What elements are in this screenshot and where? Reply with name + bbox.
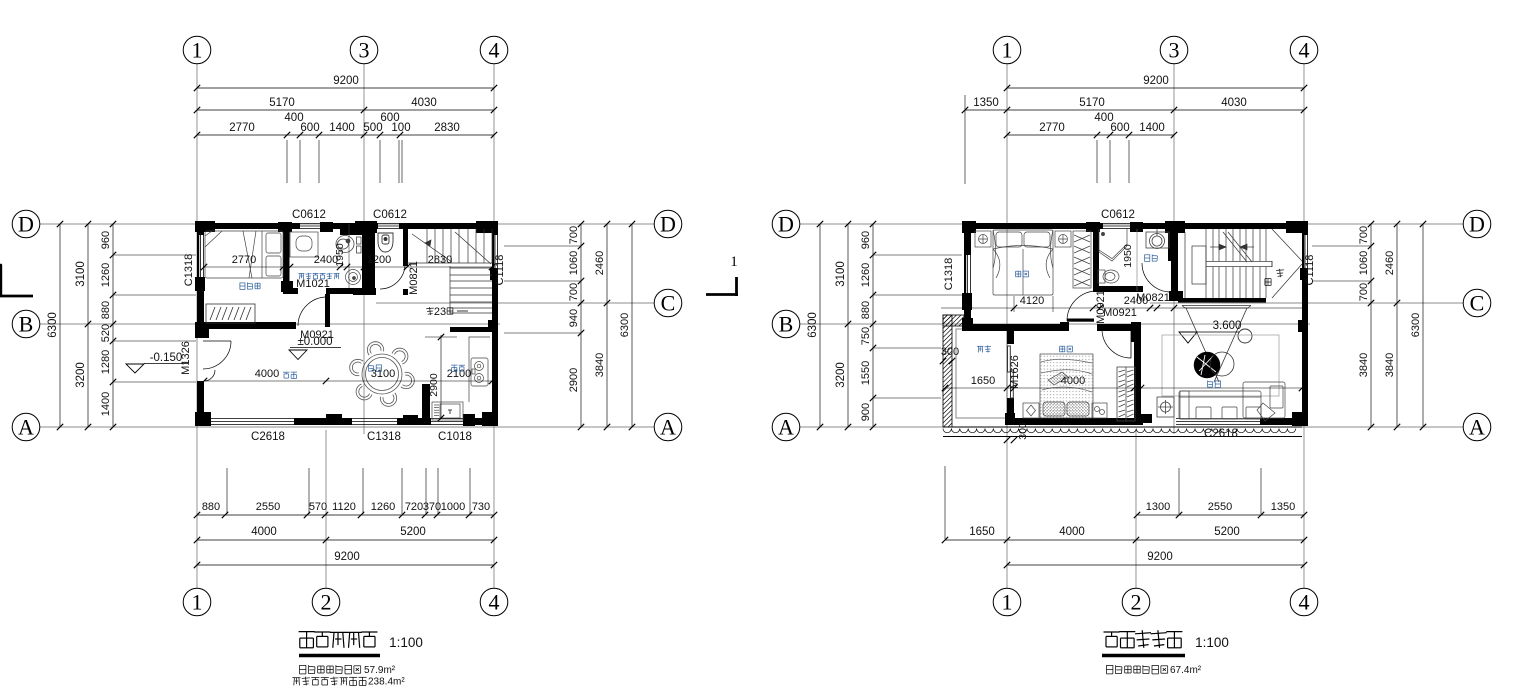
svg-text:9200: 9200 bbox=[334, 551, 360, 563]
svg-text:1350: 1350 bbox=[1271, 501, 1295, 513]
svg-text:2: 2 bbox=[321, 590, 332, 615]
svg-text:C1318: C1318 bbox=[183, 254, 195, 286]
svg-text:M1326: M1326 bbox=[180, 341, 192, 375]
svg-text:C0612: C0612 bbox=[373, 209, 407, 221]
svg-text:4000: 4000 bbox=[1061, 375, 1085, 387]
svg-text:3840: 3840 bbox=[1358, 353, 1370, 377]
svg-text:1950: 1950 bbox=[1122, 244, 1134, 268]
svg-text:2770: 2770 bbox=[229, 122, 255, 134]
svg-text:C: C bbox=[1470, 291, 1485, 316]
svg-text:A: A bbox=[660, 415, 676, 440]
svg-text:2: 2 bbox=[1131, 590, 1142, 615]
svg-text:1060: 1060 bbox=[568, 251, 580, 275]
svg-text:880: 880 bbox=[202, 501, 220, 513]
svg-text:2100: 2100 bbox=[447, 368, 471, 380]
svg-text:940: 940 bbox=[568, 309, 580, 327]
svg-text:4120: 4120 bbox=[1020, 295, 1044, 307]
svg-text:720: 720 bbox=[405, 501, 423, 513]
svg-text:1120: 1120 bbox=[332, 501, 356, 513]
svg-text:5200: 5200 bbox=[400, 526, 426, 538]
svg-text:880: 880 bbox=[860, 301, 872, 319]
svg-text:4: 4 bbox=[1299, 38, 1310, 63]
svg-text:A: A bbox=[1469, 415, 1485, 440]
svg-text:57.9m²: 57.9m² bbox=[364, 665, 396, 676]
svg-text:2900: 2900 bbox=[568, 368, 580, 392]
svg-text:3.600: 3.600 bbox=[1213, 320, 1242, 332]
svg-text:1260: 1260 bbox=[860, 263, 872, 287]
svg-text:C1118: C1118 bbox=[494, 255, 506, 286]
svg-text:C1018: C1018 bbox=[438, 431, 472, 443]
svg-text:750: 750 bbox=[860, 327, 872, 345]
svg-text:4000: 4000 bbox=[1059, 526, 1085, 538]
svg-text:1650: 1650 bbox=[969, 526, 995, 538]
svg-text:4000: 4000 bbox=[255, 368, 279, 380]
svg-text:300: 300 bbox=[941, 346, 959, 358]
svg-text:5170: 5170 bbox=[1079, 97, 1105, 109]
svg-text:9200: 9200 bbox=[1143, 75, 1169, 87]
svg-text:C1118: C1118 bbox=[1304, 255, 1316, 286]
svg-text:1:100: 1:100 bbox=[1195, 635, 1229, 650]
svg-text:4: 4 bbox=[489, 590, 500, 615]
svg-text:700: 700 bbox=[568, 226, 580, 244]
svg-text:6300: 6300 bbox=[1410, 313, 1422, 337]
svg-text:C0612: C0612 bbox=[1101, 209, 1135, 221]
svg-text:1: 1 bbox=[1002, 590, 1013, 615]
svg-text:520: 520 bbox=[100, 324, 112, 342]
svg-text:238.4m²: 238.4m² bbox=[368, 677, 405, 688]
svg-text:6300: 6300 bbox=[619, 313, 631, 337]
svg-text:M0921: M0921 bbox=[1103, 307, 1137, 319]
svg-text:2830: 2830 bbox=[434, 122, 460, 134]
svg-text:1400: 1400 bbox=[329, 122, 355, 134]
svg-text:1:100: 1:100 bbox=[389, 635, 423, 650]
svg-text:1200: 1200 bbox=[367, 254, 391, 266]
svg-text:3: 3 bbox=[1169, 38, 1180, 63]
svg-text:4: 4 bbox=[489, 38, 500, 63]
svg-text:2460: 2460 bbox=[1384, 251, 1396, 275]
svg-text:1300: 1300 bbox=[1146, 501, 1170, 513]
svg-text:2550: 2550 bbox=[1208, 501, 1232, 513]
svg-text:1: 1 bbox=[192, 590, 203, 615]
svg-text:400: 400 bbox=[284, 112, 303, 124]
svg-text:1060: 1060 bbox=[1358, 251, 1370, 275]
svg-text:M0921: M0921 bbox=[300, 329, 334, 341]
svg-text:23: 23 bbox=[434, 306, 446, 318]
svg-text:960: 960 bbox=[100, 231, 112, 249]
svg-text:1000: 1000 bbox=[441, 501, 465, 513]
svg-text:3840: 3840 bbox=[1384, 353, 1396, 377]
svg-text:5170: 5170 bbox=[269, 97, 295, 109]
svg-text:A: A bbox=[18, 415, 34, 440]
svg-text:600: 600 bbox=[380, 112, 399, 124]
svg-text:B: B bbox=[779, 312, 794, 337]
svg-text:1350: 1350 bbox=[973, 97, 999, 109]
svg-text:2900: 2900 bbox=[428, 373, 440, 397]
svg-text:M0821: M0821 bbox=[408, 261, 420, 295]
svg-text:6300: 6300 bbox=[807, 312, 819, 338]
svg-text:2770: 2770 bbox=[1039, 122, 1065, 134]
svg-text:900: 900 bbox=[860, 403, 872, 421]
svg-text:D: D bbox=[18, 212, 34, 237]
svg-text:1280: 1280 bbox=[100, 350, 112, 374]
svg-text:1: 1 bbox=[730, 254, 738, 270]
svg-text:3200: 3200 bbox=[75, 362, 87, 388]
svg-text:D: D bbox=[778, 212, 794, 237]
svg-text:6300: 6300 bbox=[47, 312, 59, 338]
svg-text:3200: 3200 bbox=[835, 362, 847, 388]
svg-text:B: B bbox=[19, 312, 34, 337]
svg-text:880: 880 bbox=[100, 301, 112, 319]
svg-text:9200: 9200 bbox=[333, 75, 359, 87]
svg-text:M0821: M0821 bbox=[1136, 292, 1170, 304]
svg-text:370: 370 bbox=[423, 501, 441, 513]
svg-text:700: 700 bbox=[1358, 226, 1370, 244]
svg-text:4030: 4030 bbox=[1221, 97, 1247, 109]
svg-text:1950: 1950 bbox=[334, 243, 346, 267]
svg-text:2770: 2770 bbox=[232, 254, 256, 266]
svg-text:C2618: C2618 bbox=[251, 431, 285, 443]
svg-text:1400: 1400 bbox=[1139, 122, 1165, 134]
svg-text:1: 1 bbox=[192, 38, 203, 63]
svg-text:5200: 5200 bbox=[1214, 526, 1240, 538]
svg-text:2830: 2830 bbox=[428, 254, 452, 266]
svg-text:67.4m²: 67.4m² bbox=[1170, 665, 1202, 676]
svg-text:570: 570 bbox=[309, 501, 327, 513]
svg-text:C: C bbox=[661, 291, 676, 316]
svg-text:730: 730 bbox=[472, 501, 490, 513]
svg-text:C2618: C2618 bbox=[1204, 428, 1238, 440]
svg-text:C1318: C1318 bbox=[367, 431, 401, 443]
svg-text:700: 700 bbox=[1358, 283, 1370, 301]
svg-text:4000: 4000 bbox=[251, 526, 277, 538]
svg-text:9200: 9200 bbox=[1147, 551, 1173, 563]
svg-text:400: 400 bbox=[1094, 112, 1113, 124]
svg-text:4030: 4030 bbox=[411, 97, 437, 109]
svg-text:1650: 1650 bbox=[971, 375, 995, 387]
svg-text:M1626: M1626 bbox=[1009, 355, 1021, 389]
svg-text:1260: 1260 bbox=[100, 263, 112, 287]
svg-text:300: 300 bbox=[1017, 422, 1029, 440]
svg-text:1400: 1400 bbox=[100, 392, 112, 416]
svg-text:C0612: C0612 bbox=[292, 209, 326, 221]
svg-text:3840: 3840 bbox=[594, 353, 606, 377]
svg-text:1: 1 bbox=[1002, 38, 1013, 63]
svg-text:2460: 2460 bbox=[594, 251, 606, 275]
svg-text:700: 700 bbox=[568, 283, 580, 301]
svg-text:1550: 1550 bbox=[860, 361, 872, 385]
svg-text:960: 960 bbox=[860, 231, 872, 249]
svg-text:-0.150: -0.150 bbox=[150, 352, 183, 364]
svg-text:D: D bbox=[660, 212, 676, 237]
svg-text:1260: 1260 bbox=[371, 501, 395, 513]
svg-text:3100: 3100 bbox=[835, 261, 847, 287]
svg-text:3100: 3100 bbox=[75, 261, 87, 287]
svg-text:3: 3 bbox=[359, 38, 370, 63]
svg-text:C1318: C1318 bbox=[943, 258, 955, 290]
svg-text:4: 4 bbox=[1299, 590, 1310, 615]
svg-text:A: A bbox=[778, 415, 794, 440]
svg-text:2550: 2550 bbox=[256, 501, 280, 513]
svg-text:3100: 3100 bbox=[371, 368, 395, 380]
svg-text:D: D bbox=[1469, 212, 1485, 237]
svg-text:M1021: M1021 bbox=[296, 278, 330, 290]
